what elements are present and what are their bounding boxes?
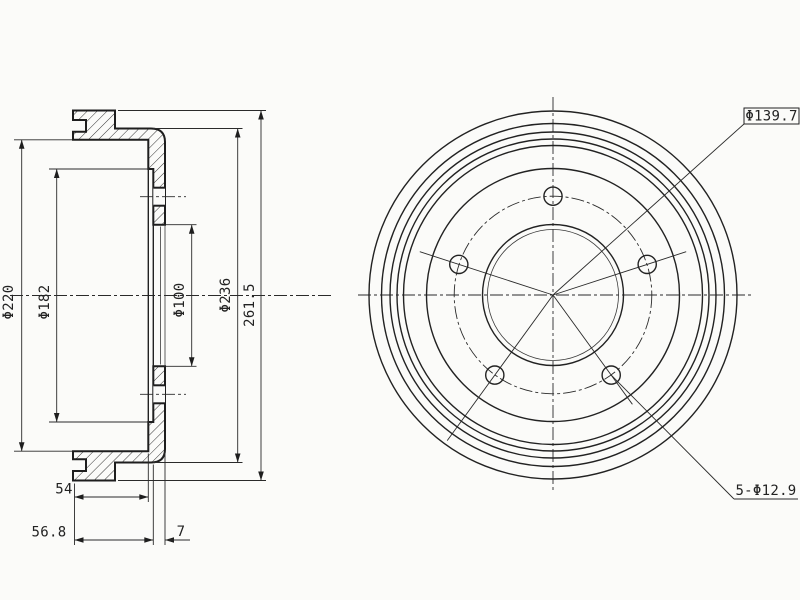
hole-axis-bottom-right [553,295,632,404]
section-body-top [73,111,165,225]
hole-axis-bottom-left [447,295,553,441]
bolt-holes-leader [611,375,734,499]
hole-axis-right [553,252,686,295]
dim-label-phi100: Φ100 [172,283,188,318]
dim-label-56-8: 56.8 [32,525,67,541]
dim-label-phi182: Φ182 [37,285,53,320]
bolt-holes-label: 5-Φ12.9 [735,483,796,499]
dim-label-261-5: 261.5 [242,283,258,327]
section-view: Φ220 Φ182 Φ100 Φ236 261.5 [1,111,332,546]
brake-drum-technical-drawing: Φ220 Φ182 Φ100 Φ236 261.5 [0,0,800,600]
dim-label-54: 54 [55,482,72,498]
dim-label-phi236: Φ236 [218,278,234,313]
front-view: Φ139.7 5-Φ12.9 [358,97,799,499]
dim-label-phi220: Φ220 [1,285,17,320]
bolt-circle-label: Φ139.7 [745,109,797,125]
section-body-bottom [73,366,165,480]
hole-axis-left [420,252,553,295]
dim-label-7: 7 [177,524,186,540]
